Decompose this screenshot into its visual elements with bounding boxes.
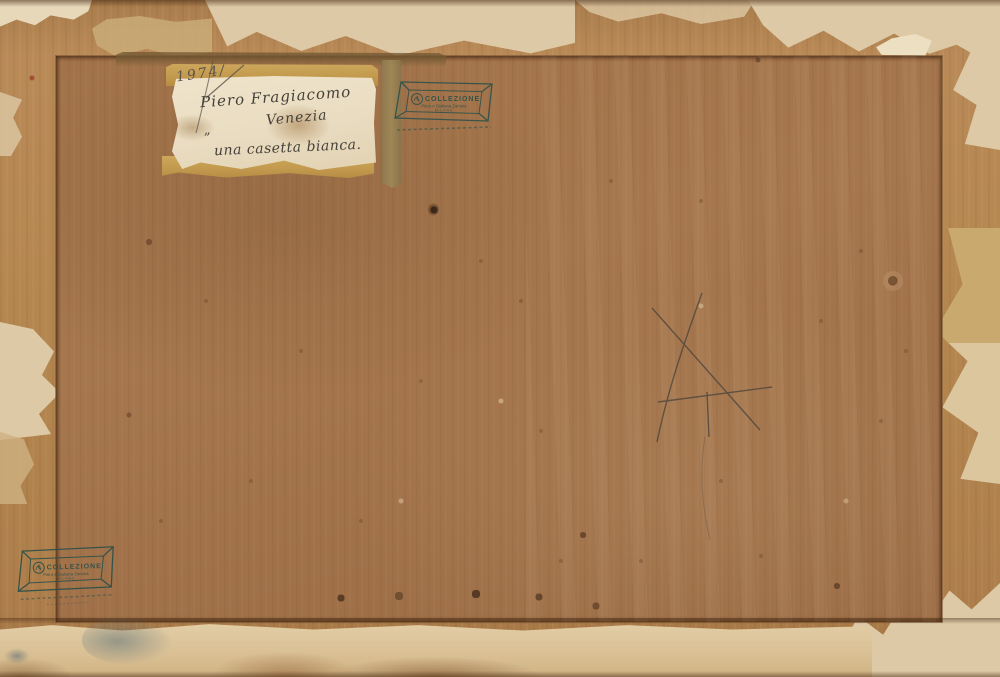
stamp-title: COLLEZIONE	[47, 563, 102, 571]
stamp-plaque-graphic: COLLEZIONE Piero e Giuliana Zanona MILAN…	[394, 80, 496, 136]
torn-paper-patch-top-left-2	[92, 16, 212, 58]
torn-paper-patch-left-3	[0, 432, 34, 504]
stamp-title: COLLEZIONE	[425, 96, 480, 103]
label-quote-mark: ”	[203, 131, 211, 146]
collection-stamp-top: COLLEZIONE Piero e Giuliana Zanona MILAN…	[394, 80, 496, 136]
nail-hole	[888, 276, 898, 286]
torn-paper-patch-left	[0, 322, 60, 440]
pencil-scribble-marks	[600, 270, 800, 560]
blue-mark-corner	[4, 648, 30, 664]
collection-stamp-bottom: COLLEZIONE Piero e Giuliana Zanona MILAN…	[15, 545, 119, 610]
wood-speckles	[0, 0, 2, 2]
stamp-city: MILANO	[435, 109, 453, 113]
photo-top-edge-shadow	[0, 0, 1000, 7]
stamp-city: MILANO	[57, 576, 75, 580]
painting-verso-photo: 1974/ Piero Fragiacomo Venezia ” una cas…	[0, 0, 1000, 677]
stamp-plaque-graphic: COLLEZIONE Piero e Giuliana Zanona MILAN…	[15, 545, 119, 610]
torn-paper-patch-left-2	[0, 92, 22, 156]
photo-bottom-edge-shadow	[0, 671, 1000, 677]
torn-paper-patch-top-center	[205, 0, 575, 58]
blue-gray-stain	[82, 618, 170, 664]
